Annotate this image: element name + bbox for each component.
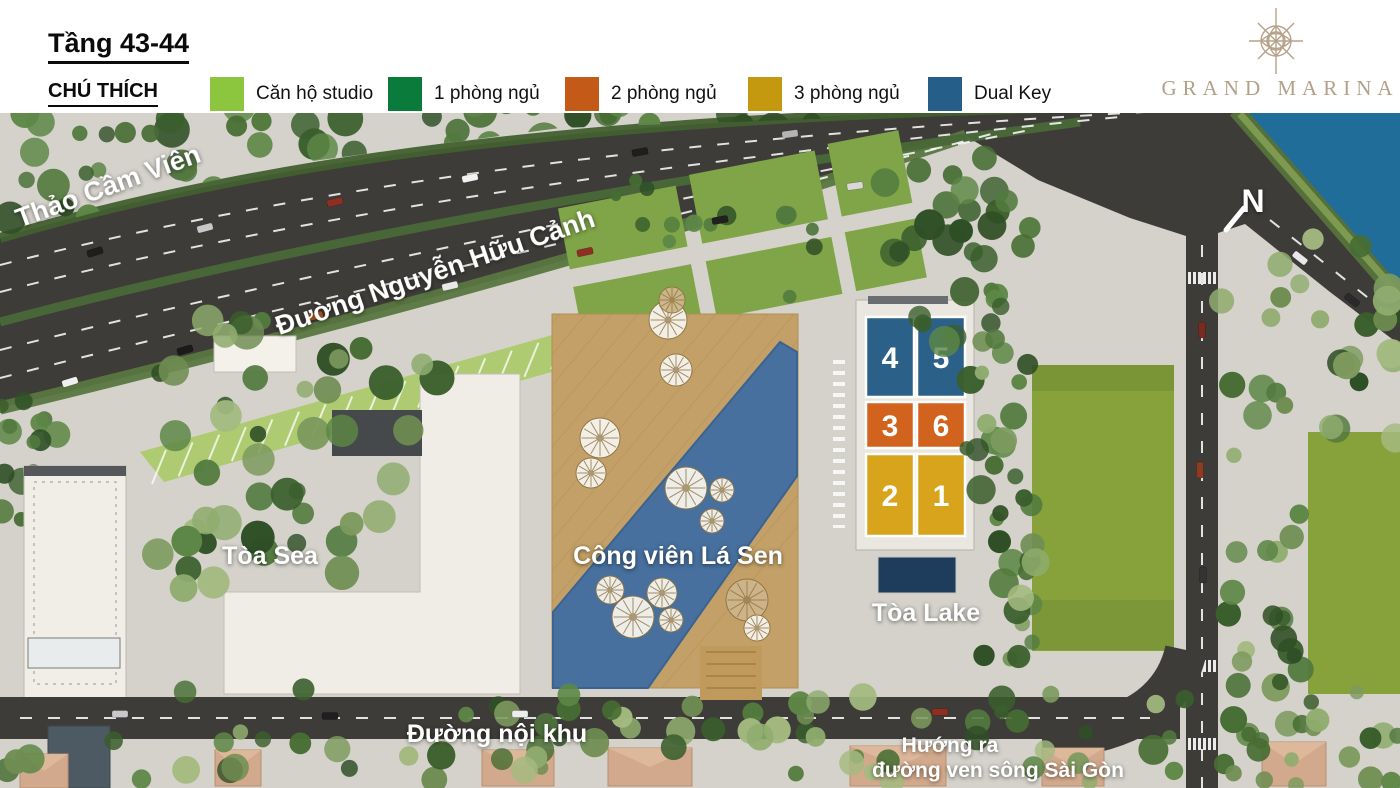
legend-label: 1 phòng ngủ bbox=[434, 83, 540, 105]
unit-2-number: 2 bbox=[882, 480, 899, 513]
legend-color-3br-icon bbox=[748, 77, 782, 111]
brand-name: GRAND MARINA bbox=[1158, 76, 1400, 101]
slide: Tầng 43-44 CHÚ THÍCH Căn hộ studio 1 phò… bbox=[0, 0, 1400, 788]
unit-4-number: 4 bbox=[882, 342, 899, 375]
page-title: Tầng 43-44 bbox=[48, 28, 189, 64]
map-label-internal-road: Đường nội khu bbox=[407, 720, 587, 748]
site-map: 4 5 3 6 2 1 bbox=[0, 113, 1400, 788]
legend-item-3br: 3 phòng ngủ bbox=[748, 77, 900, 111]
unit-6-number: 6 bbox=[933, 410, 950, 443]
map-label-direction-2: đường ven sông Sài Gòn bbox=[872, 759, 1124, 782]
unit-3-number: 3 bbox=[882, 410, 899, 443]
header: Tầng 43-44 CHÚ THÍCH Căn hộ studio 1 phò… bbox=[0, 0, 1400, 113]
legend-title: CHÚ THÍCH bbox=[48, 80, 158, 107]
lake-pool bbox=[878, 557, 956, 593]
right-lawn bbox=[1308, 432, 1400, 694]
legend-label: Dual Key bbox=[974, 83, 1051, 105]
legend-item-dualkey: Dual Key bbox=[928, 77, 1051, 111]
legend-label: 2 phòng ngủ bbox=[611, 83, 717, 105]
small-building bbox=[28, 638, 120, 668]
unit-1-number: 1 bbox=[933, 480, 950, 513]
legend-color-1br-icon bbox=[388, 77, 422, 111]
legend-label: Căn hộ studio bbox=[256, 83, 373, 105]
legend-color-2br-icon bbox=[565, 77, 599, 111]
north-label: N bbox=[1241, 183, 1264, 219]
legend-item-1br: 1 phòng ngủ bbox=[388, 77, 540, 111]
map-label-sea-tower: Tòa Sea bbox=[222, 542, 319, 570]
garden-plot bbox=[700, 646, 762, 700]
legend-item-2br: 2 phòng ngủ bbox=[565, 77, 717, 111]
legend-color-dualkey-icon bbox=[928, 77, 962, 111]
map-label-direction-1: Hướng ra bbox=[902, 734, 999, 757]
legend-item-studio: Căn hộ studio bbox=[210, 77, 373, 111]
legend-color-studio-icon bbox=[210, 77, 244, 111]
map-label-lake-tower: Tòa Lake bbox=[872, 599, 980, 627]
map-label-park: Công viên Lá Sen bbox=[573, 542, 783, 570]
legend-label: 3 phòng ngủ bbox=[794, 83, 900, 105]
lawn-court bbox=[1032, 365, 1174, 651]
compass-logo-icon bbox=[1241, 6, 1311, 76]
